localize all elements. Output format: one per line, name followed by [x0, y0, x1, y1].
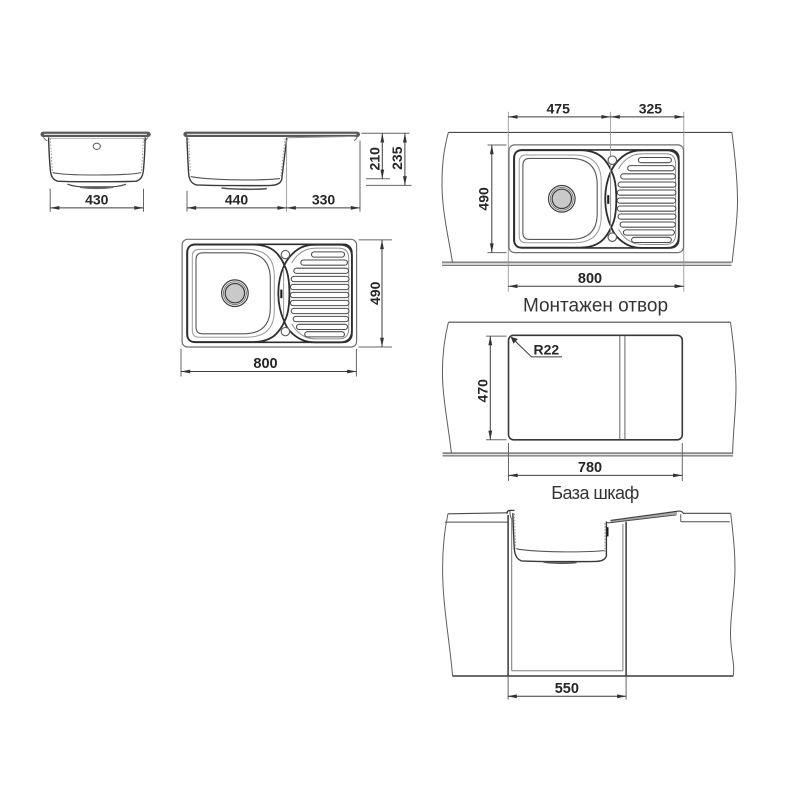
svg-text:475: 475	[547, 101, 571, 117]
svg-text:780: 780	[578, 460, 602, 476]
svg-text:800: 800	[253, 356, 277, 372]
svg-text:325: 325	[639, 101, 663, 117]
svg-text:430: 430	[85, 192, 109, 208]
svg-text:210: 210	[367, 147, 383, 171]
svg-text:490: 490	[367, 281, 383, 305]
svg-text:800: 800	[578, 271, 602, 287]
svg-text:550: 550	[555, 681, 579, 697]
svg-text:235: 235	[389, 146, 405, 170]
svg-text:330: 330	[312, 192, 336, 208]
svg-text:База шкаф: База шкаф	[551, 483, 639, 503]
svg-text:490: 490	[476, 187, 492, 211]
svg-text:440: 440	[225, 192, 249, 208]
svg-text:Монтажен отвор: Монтажен отвор	[523, 296, 668, 317]
svg-text:470: 470	[474, 379, 490, 403]
svg-text:R22: R22	[534, 342, 560, 358]
